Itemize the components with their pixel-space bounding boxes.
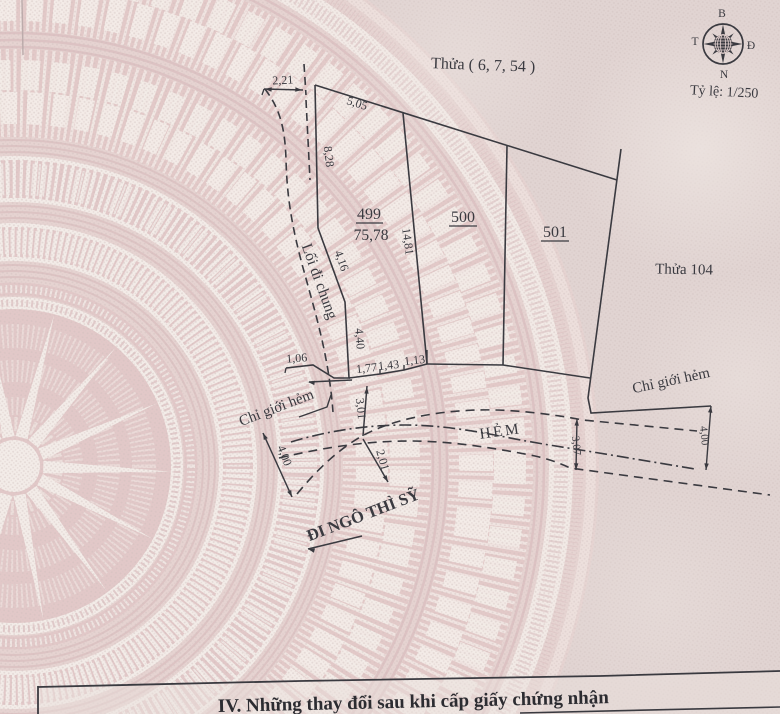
svg-text:1,43: 1,43: [377, 357, 399, 373]
svg-text:501: 501: [543, 224, 567, 241]
svg-text:500: 500: [451, 209, 475, 226]
svg-text:1,06: 1,06: [286, 350, 308, 365]
svg-text:499: 499: [357, 206, 381, 223]
svg-text:4,00: 4,00: [697, 425, 711, 446]
svg-text:3,01: 3,01: [353, 397, 369, 419]
svg-text:75,78: 75,78: [354, 227, 389, 244]
svg-text:1,13: 1,13: [403, 352, 425, 368]
svg-text:T: T: [691, 36, 698, 48]
svg-text:N: N: [720, 69, 729, 81]
svg-text:2,21: 2,21: [272, 72, 294, 87]
svg-text:3,07: 3,07: [569, 435, 583, 456]
svg-text:Đ: Đ: [747, 40, 755, 52]
svg-text:4,40: 4,40: [352, 328, 368, 350]
svg-text:Thửa 104: Thửa 104: [655, 261, 713, 278]
svg-text:Thửa ( 6, 7, 54 ): Thửa ( 6, 7, 54 ): [431, 55, 536, 76]
svg-text:B: B: [718, 8, 726, 20]
svg-text:1,77: 1,77: [355, 360, 377, 376]
svg-text:8,28: 8,28: [321, 145, 337, 168]
